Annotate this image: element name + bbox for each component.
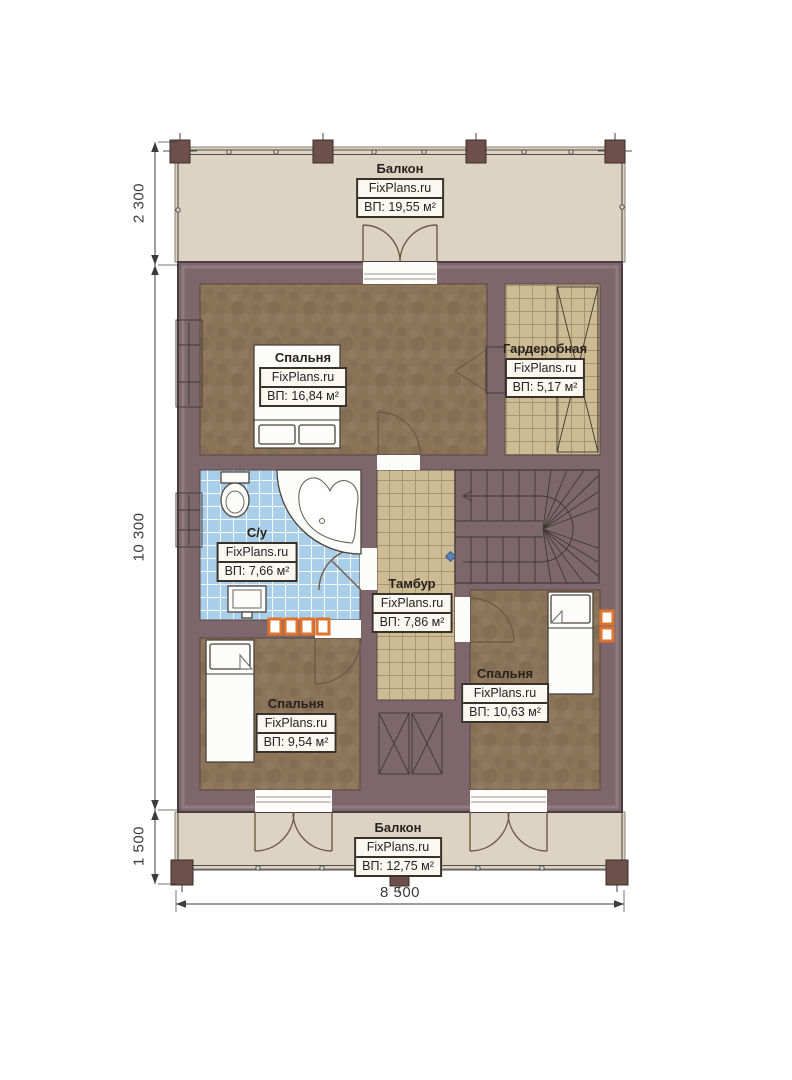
room-title: Спальня — [256, 696, 337, 711]
room-info-box: FixPlans.ru ВП: 7,86 м² — [372, 593, 453, 633]
area-text: ВП: 12,75 м² — [356, 856, 440, 875]
room-title: Балкон — [354, 820, 442, 835]
room-title: Спальня — [461, 666, 549, 681]
brand-text: FixPlans.ru — [358, 180, 442, 197]
room-title: Тамбур — [372, 576, 453, 591]
area-text: ВП: 7,86 м² — [374, 612, 451, 631]
brand-text: FixPlans.ru — [261, 369, 345, 386]
dimension-top-left: 2 300 — [131, 183, 148, 223]
dimension-bottom: 8 500 — [380, 884, 420, 901]
room-title: Спальня — [259, 350, 347, 365]
room-title: Балкон — [356, 161, 444, 176]
label-bedroom-bottom-right: Спальня FixPlans.ru ВП: 10,63 м² — [461, 666, 549, 723]
brand-text: FixPlans.ru — [219, 544, 296, 561]
label-bedroom-top: Спальня FixPlans.ru ВП: 16,84 м² — [259, 350, 347, 407]
room-title: Гардеробная — [503, 341, 587, 356]
label-balcony-bottom: Балкон FixPlans.ru ВП: 12,75 м² — [354, 820, 442, 877]
brand-text: FixPlans.ru — [356, 839, 440, 856]
label-bathroom: С/у FixPlans.ru ВП: 7,66 м² — [217, 525, 298, 582]
brand-text: FixPlans.ru — [507, 360, 584, 377]
brand-text: FixPlans.ru — [463, 685, 547, 702]
label-balcony-top: Балкон FixPlans.ru ВП: 19,55 м² — [356, 161, 444, 218]
room-info-box: FixPlans.ru ВП: 16,84 м² — [259, 367, 347, 407]
room-info-box: FixPlans.ru ВП: 5,17 м² — [505, 358, 586, 398]
toilet-icon — [221, 472, 249, 517]
single-bed-left-icon — [206, 640, 254, 762]
room-title: С/у — [217, 525, 298, 540]
label-tambour: Тамбур FixPlans.ru ВП: 7,86 м² — [372, 576, 453, 633]
area-text: ВП: 7,66 м² — [219, 561, 296, 580]
brand-text: FixPlans.ru — [258, 715, 335, 732]
dimension-bottom-left: 1 500 — [131, 826, 148, 866]
area-text: ВП: 16,84 м² — [261, 386, 345, 405]
room-info-box: FixPlans.ru ВП: 12,75 м² — [354, 837, 442, 877]
area-text: ВП: 9,54 м² — [258, 732, 335, 751]
label-bedroom-bottom-left: Спальня FixPlans.ru ВП: 9,54 м² — [256, 696, 337, 753]
room-info-box: FixPlans.ru ВП: 10,63 м² — [461, 683, 549, 723]
label-wardrobe: Гардеробная FixPlans.ru ВП: 5,17 м² — [503, 341, 587, 398]
dimension-middle-left: 10 300 — [131, 513, 148, 562]
room-info-box: FixPlans.ru ВП: 7,66 м² — [217, 542, 298, 582]
room-info-box: FixPlans.ru ВП: 9,54 м² — [256, 713, 337, 753]
area-text: ВП: 5,17 м² — [507, 377, 584, 396]
area-text: ВП: 10,63 м² — [463, 702, 547, 721]
brand-text: FixPlans.ru — [374, 595, 451, 612]
single-bed-right-icon — [548, 592, 593, 694]
area-text: ВП: 19,55 м² — [358, 197, 442, 216]
floor-plan-canvas: 2 300 10 300 1 500 8 500 Балкон FixPlans… — [0, 0, 792, 1080]
room-info-box: FixPlans.ru ВП: 19,55 м² — [356, 178, 444, 218]
